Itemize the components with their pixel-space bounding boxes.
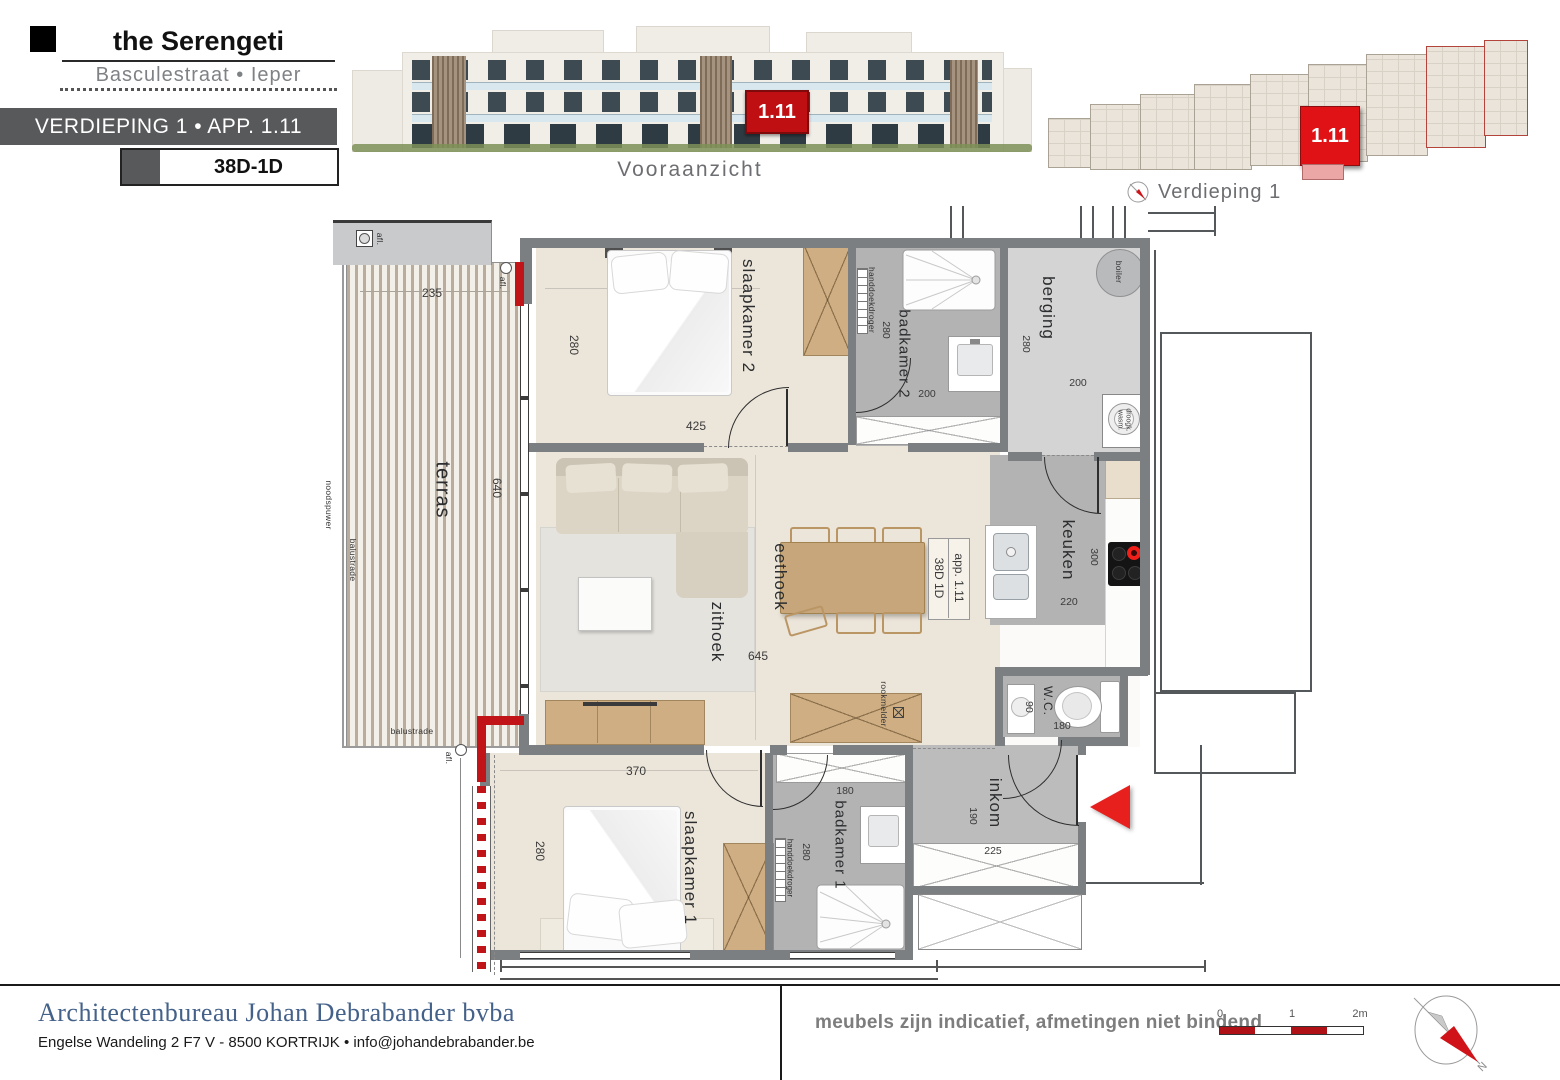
sofa-cushion [622,463,673,493]
apartment-label-unit: 38D 1D [932,558,946,599]
wall [788,443,848,452]
dim-terras-h: 640 [490,478,504,498]
elevation-hedge [352,144,1032,152]
overview-block [1194,84,1252,170]
overview-block [1140,94,1196,170]
wardrobe [790,693,922,743]
room-label-wc: W.C. [1041,686,1055,716]
overview-block [1366,54,1428,156]
room-label-keuken: keuken [1058,520,1078,581]
dim-slk1-w: 370 [626,764,646,778]
outline-rect [1154,692,1296,774]
scale-bar-segment [1255,1026,1292,1035]
sideboard-seam [597,700,598,743]
dining-chair [882,612,922,634]
toilet-tank [1100,681,1120,733]
dim-wc-w: 180 [1053,720,1071,732]
overview-block [1426,46,1486,148]
opening-dashed [1042,455,1094,456]
outline-line [1080,206,1082,238]
bed-pillow [618,899,688,950]
drain-symbol [500,262,512,274]
architect-address: Engelse Wandeling 2 F7 V - 8500 KORTRIJK… [38,1034,535,1051]
architect-name: Architectenbureau Johan Debrabander bvba [38,998,515,1028]
elevation-unit-badge: 1.11 [745,90,809,134]
dim-living-w: 645 [748,649,768,663]
dim-bk1-w: 180 [836,785,854,797]
tv [583,702,657,706]
apartment-label-divider [948,538,949,618]
outline-dashed [494,755,495,975]
red-wall-corner [477,716,486,782]
window-glazing [520,952,690,959]
drain-symbol [359,233,370,244]
shower [902,249,996,311]
dimension-line [500,978,938,980]
window-glazing [520,304,529,714]
dining-chair [836,612,876,634]
compass-icon [1126,180,1150,204]
outline-line [1124,206,1126,238]
overview-block [1484,40,1528,136]
noodspuwer-label: noodspuwer [324,480,334,529]
overview-unit-badge-label: 1.11 [1301,107,1359,165]
dotted-divider [60,88,337,91]
handdoekdroger-label: handdoekdroger [867,267,877,333]
disclaimer-text: meubels zijn indicatief, afmetingen niet… [815,1012,1262,1034]
dimension-tick [936,960,938,972]
sofa-chaise [676,532,748,598]
elevation-unit-badge-label: 1.11 [747,92,807,132]
overview-unit-terrace [1302,164,1344,180]
scale-bar-segment [1291,1026,1328,1035]
dim-berging-h: 280 [1020,335,1032,353]
wall [848,246,856,445]
afl-label: afl. [498,277,508,290]
compass-rose-icon: N [1402,992,1494,1078]
wall [908,443,1000,452]
towel-radiator [775,838,786,902]
bed-pillow [610,251,670,295]
dim-slk2-w: 425 [686,419,706,433]
room-label-inkom: inkom [985,778,1005,828]
red-wall-segment [515,262,524,306]
room-label-zithoek: zithoek [707,602,727,663]
elevation-wood-slats [700,56,732,148]
rookmelder-label: rookmelder [879,681,889,727]
overview-block [1090,104,1142,170]
overview-caption: Verdieping 1 [1158,181,1281,204]
wall [1000,246,1008,452]
building-elevation-render: 1.11 [345,20,1035,160]
scale-tick-1: 1 [1289,1008,1295,1020]
sideboard-seam [650,700,651,743]
room-label-terras: terras [431,461,454,518]
wall [1008,452,1042,461]
title-underline [62,60,335,62]
washbasin-bowl [868,815,899,847]
outline-line [1148,230,1216,232]
opening-dashed [704,446,788,447]
floor-bar-label: VERDIEPING 1 • APP. 1.11 [0,108,337,145]
elevation-wood-slats [432,56,466,148]
logo-square [30,26,56,52]
afl-label: afl. [444,752,454,765]
door-leaf [760,750,762,806]
page-subtitle: Basculestraat • Ieper [62,64,335,87]
outline-line [950,206,952,238]
outline-line [1148,212,1216,214]
overview-unit-highlight: 1.11 [1300,106,1360,166]
wall [765,753,773,953]
dimension-line [460,758,461,958]
kitchen-sink-drain [1006,547,1016,557]
wall [833,745,913,755]
apartment-label-app: app. 1.11 [952,553,966,602]
terrace-balustrade-line [342,262,344,748]
dim-keuken-h: 300 [1088,548,1100,566]
dim-wc-h: 90 [1023,701,1035,713]
room-label-badkamer2: badkamer 2 [896,309,913,398]
wall [905,753,913,953]
drain-symbol [455,744,467,756]
balustrade-label: balustrade [391,726,434,736]
scale-tick-2m: 2m [1352,1008,1367,1020]
wall [995,667,1003,746]
wall [520,238,1148,248]
dim-bk2-w: 200 [918,388,936,400]
toilet-bowl-inner [1062,692,1092,720]
kitchen-sink-basin [993,574,1029,600]
dim-keuken-w: 220 [1060,596,1078,608]
sofa-seam [618,478,619,532]
room-label-slaapkamer1: slaapkamer 1 [680,811,700,925]
floor-bar: VERDIEPING 1 • APP. 1.11 [0,108,337,145]
outline-terrace-below [918,894,1082,950]
scale-tick-0: 0 [1217,1008,1223,1020]
room-label-eethoek: eethoek [770,543,790,611]
dim-bk1-h: 280 [800,843,812,861]
unit-code-square [122,150,160,184]
scale-bar-segment [1219,1026,1257,1035]
rookmelder-symbol [893,707,904,718]
dimension-tick [500,960,502,972]
sideboard [545,700,705,745]
coffee-table [578,577,652,631]
outline-line [1112,206,1114,238]
shower [816,884,905,950]
sofa-cushion [678,463,729,493]
dimension-line [755,455,756,740]
window-glazing [790,952,895,959]
unit-code-box: 38D-1D [120,148,339,186]
dimension-tick [1204,960,1206,972]
room-label-badkamer1: badkamer 1 [832,800,849,889]
escape-ladder [472,786,491,972]
dim-berging-w: 200 [1069,377,1087,389]
elevation-caption: Vooraanzicht [345,158,1035,182]
outline-line [1086,882,1204,884]
washbasin-bowl [957,344,993,376]
door-leaf [786,389,788,447]
room-label-berging: berging [1038,276,1058,340]
dim-inkom-h: 190 [967,807,979,825]
washer-label: droogk. [1125,408,1132,431]
dim-slk1-h: 280 [533,841,547,861]
outline-line [1092,206,1094,238]
dining-table [780,542,925,614]
overview-block [1048,118,1092,168]
handdoekdroger-label: handdoekdroger [786,839,795,897]
door-leaf [1076,755,1078,825]
sofa-cushion [565,463,616,494]
outline-line [1214,206,1216,236]
dim-inkom-w: 225 [984,845,1002,857]
footer-vertical-divider [780,986,782,1080]
vanity-cabinet [856,416,1002,445]
dim-bk2-h: 280 [880,321,892,339]
dimension-line [500,966,1206,968]
afl-label: afl. [375,233,385,246]
wall [528,443,704,452]
outline-line [962,206,964,238]
outline-rect [1160,332,1312,692]
dim-slk2-h: 280 [567,335,581,355]
wall [1058,737,1128,746]
elevation-wood-slats [950,60,978,148]
unit-code: 38D-1D [160,150,337,184]
wardrobe [803,244,852,356]
wall [1078,822,1086,888]
cooktop-burner [1112,566,1126,580]
bed-pillow [668,250,729,295]
room-label-slaapkamer2: slaapkamer 2 [738,259,758,373]
boiler-label: boiler [1114,261,1124,284]
faucet [970,339,980,344]
cooktop-burner-active [1127,546,1141,560]
dim-terras-w: 235 [422,286,442,300]
scale-bar-segment [1327,1026,1364,1035]
door-leaf [1097,457,1099,513]
wall [519,745,704,755]
plan-sheet: the Serengeti Basculestraat • Ieper VERD… [0,0,1560,1080]
wall [1120,675,1128,746]
balustrade-label: balustrade [348,539,358,582]
terrace-balustrade-line [344,746,520,748]
washer-label: wasm. [1117,410,1124,430]
opening-dashed [913,748,995,749]
cooktop-burner [1112,547,1126,561]
outline-line [1200,745,1202,885]
page-title: the Serengeti [62,26,335,57]
wall [1140,238,1150,675]
wall [1078,745,1086,755]
entrance-arrow-icon [1090,785,1130,829]
